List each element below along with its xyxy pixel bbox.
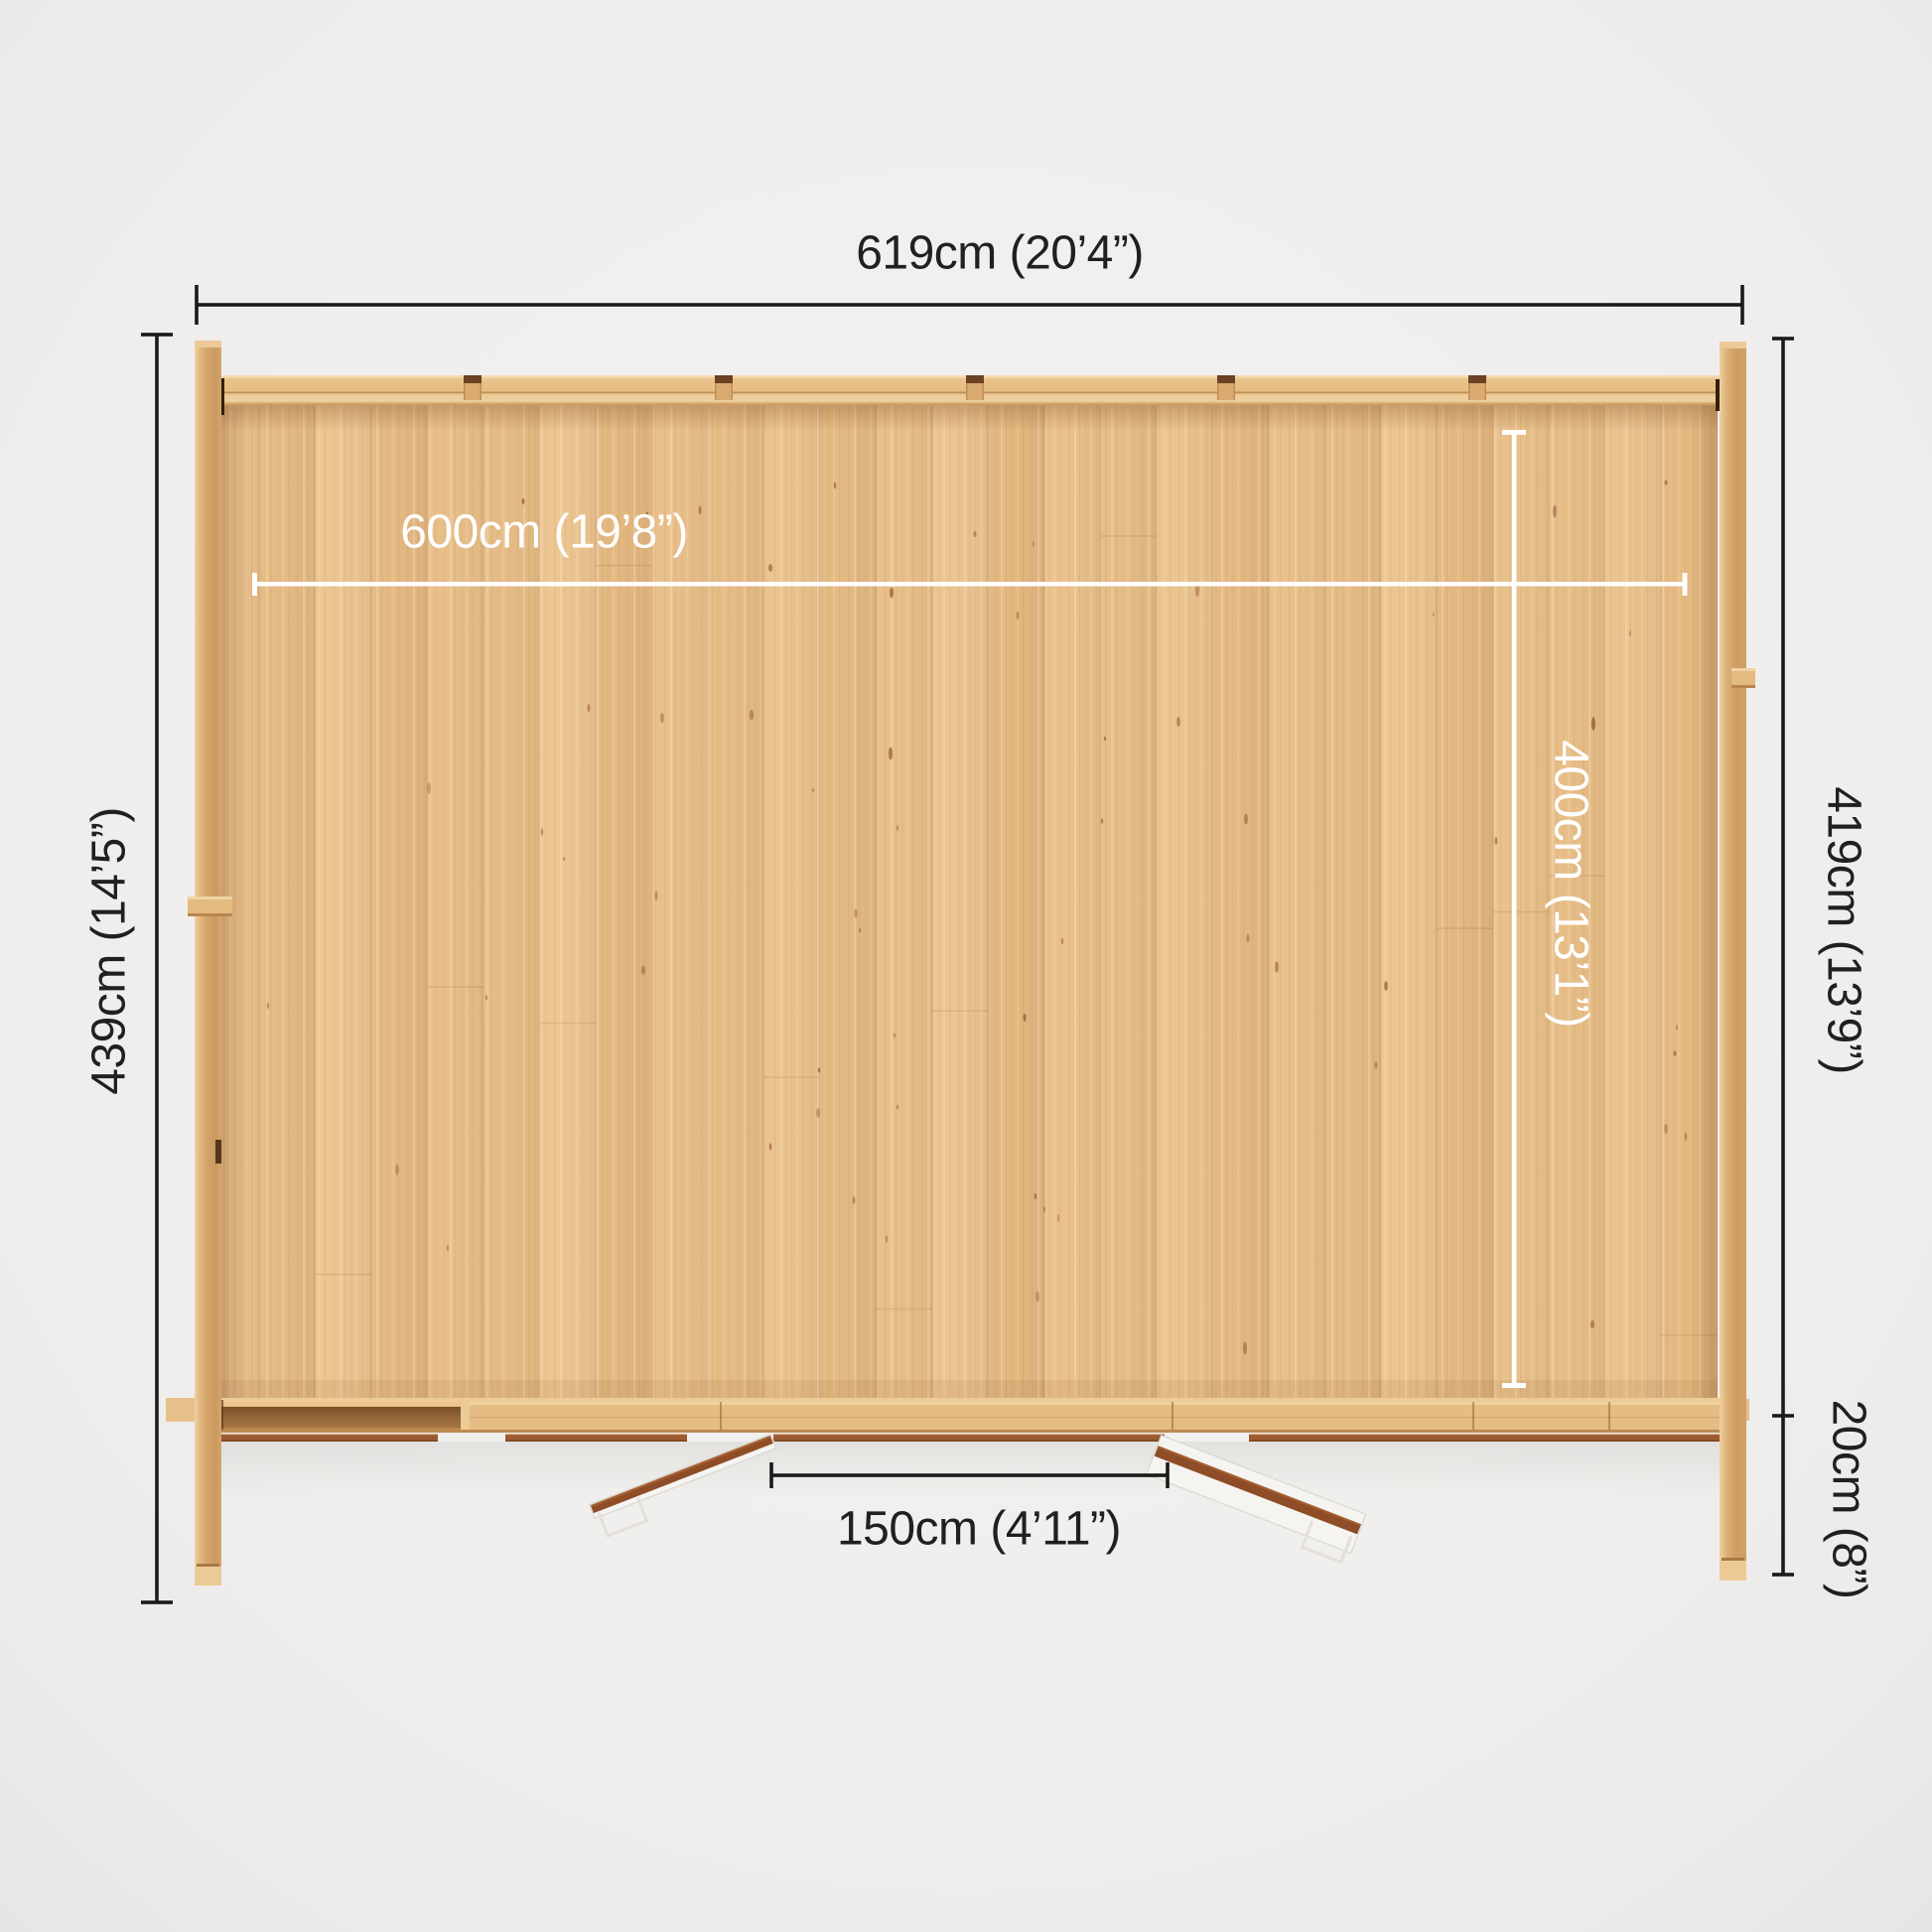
svg-text:439cm (14’5”): 439cm (14’5”)	[83, 807, 136, 1095]
svg-text:20cm (8”): 20cm (8”)	[1823, 1400, 1875, 1599]
svg-text:600cm (19’8”): 600cm (19’8”)	[400, 506, 688, 559]
svg-text:419cm (13’9”): 419cm (13’9”)	[1818, 786, 1870, 1074]
svg-text:619cm (20’4”): 619cm (20’4”)	[856, 227, 1144, 280]
svg-text:150cm (4’11”): 150cm (4’11”)	[837, 1503, 1121, 1556]
svg-text:400cm (13’1”): 400cm (13’1”)	[1545, 740, 1597, 1028]
